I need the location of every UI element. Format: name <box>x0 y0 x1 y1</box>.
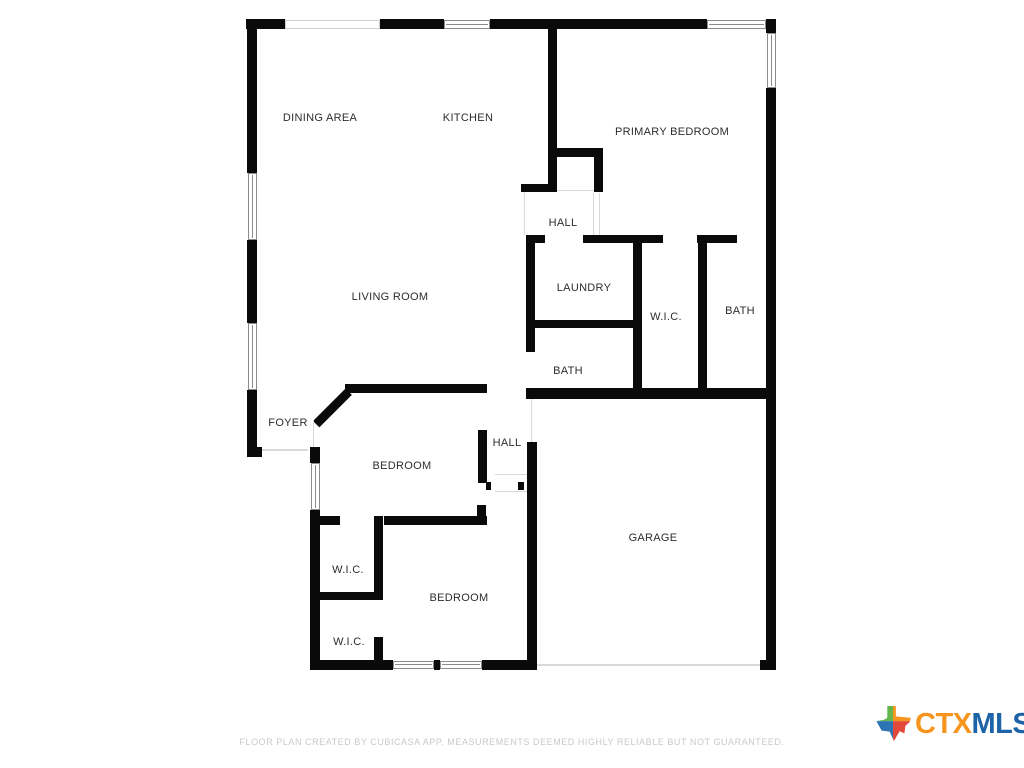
door-opening <box>599 193 600 235</box>
wall <box>374 516 383 600</box>
texas-red-quadrant <box>893 721 912 743</box>
window <box>285 20 380 29</box>
logo-ctx-text: CTX <box>915 710 972 739</box>
wall <box>247 447 262 457</box>
door-opening <box>593 193 594 235</box>
window <box>767 33 776 88</box>
door-opening <box>313 420 314 447</box>
wall <box>384 516 487 525</box>
floorplan: DINING AREAKITCHENPRIMARY BEDROOMHALLLIV… <box>0 0 1024 768</box>
window <box>444 20 490 29</box>
window <box>311 463 320 510</box>
door-opening <box>495 491 527 492</box>
window-center-line <box>395 664 432 665</box>
wall <box>760 660 776 670</box>
wall <box>247 390 257 447</box>
wall <box>527 442 537 670</box>
room-label-hall-lower: HALL <box>493 437 522 449</box>
wall <box>521 184 557 192</box>
wall <box>526 235 545 243</box>
wall <box>594 148 603 192</box>
window-center-line <box>252 175 253 238</box>
wall <box>310 447 320 463</box>
wall <box>548 29 557 192</box>
window <box>393 661 434 669</box>
wall <box>490 19 707 29</box>
room-label-wic-primary: W.I.C. <box>650 311 682 323</box>
room-label-hall-upper: HALL <box>549 217 578 229</box>
wall <box>247 19 257 173</box>
room-label-garage: GARAGE <box>629 532 678 544</box>
wall <box>482 660 537 670</box>
door-opening <box>531 399 532 442</box>
room-label-wic-1: W.I.C. <box>332 564 364 576</box>
wall <box>766 19 776 33</box>
window <box>707 20 766 29</box>
wall <box>478 430 487 483</box>
window <box>248 173 257 240</box>
wall <box>310 592 383 600</box>
wall <box>698 235 707 398</box>
window-center-line <box>771 35 772 86</box>
floorplan-image: DINING AREAKITCHENPRIMARY BEDROOMHALLLIV… <box>0 0 1024 768</box>
room-label-kitchen: KITCHEN <box>443 112 493 124</box>
door-opening <box>262 449 308 451</box>
window-center-line <box>446 24 488 25</box>
window-center-line <box>709 24 764 25</box>
wall <box>526 243 535 352</box>
wall <box>380 19 444 29</box>
wall <box>345 384 487 393</box>
room-label-primary-bedroom: PRIMARY BEDROOM <box>615 126 729 138</box>
wall <box>310 660 393 670</box>
door-opening <box>537 664 760 666</box>
room-label-living-room: LIVING ROOM <box>352 291 429 303</box>
texas-green-quadrant <box>874 705 893 721</box>
window <box>248 323 257 390</box>
wall <box>766 88 776 670</box>
room-label-bath-main: BATH <box>553 365 583 377</box>
door-opening <box>557 190 594 191</box>
room-label-bedroom-front: BEDROOM <box>373 460 432 472</box>
disclaimer-text: FLOOR PLAN CREATED BY CUBICASA APP. MEAS… <box>239 737 784 747</box>
texas-blue-quadrant <box>874 721 893 743</box>
door-opening <box>524 192 525 235</box>
room-label-foyer: FOYER <box>268 417 307 429</box>
room-label-bedroom-lower: BEDROOM <box>430 592 489 604</box>
wall <box>310 510 320 668</box>
room-label-bath-primary: BATH <box>725 305 755 317</box>
wall <box>247 240 257 323</box>
window-center-line <box>442 664 480 665</box>
wall <box>526 320 642 328</box>
wall <box>518 482 524 490</box>
wall <box>486 482 491 490</box>
wall-diagonal <box>313 388 352 427</box>
door-opening <box>495 474 527 475</box>
window <box>440 661 482 669</box>
logo-mls-text: MLS <box>972 710 1024 739</box>
window-center-line <box>315 465 316 508</box>
texas-orange-quadrant <box>893 705 912 721</box>
room-label-dining-area: DINING AREA <box>283 112 357 124</box>
texas-icon <box>874 704 912 744</box>
window-center-line <box>252 325 253 388</box>
wall <box>633 235 642 398</box>
room-label-wic-2: W.I.C. <box>333 636 365 648</box>
wall <box>526 388 776 399</box>
wall <box>583 235 663 243</box>
ctxmls-logo: CTXMLS <box>874 704 1024 744</box>
room-label-laundry: LAUNDRY <box>557 282 611 294</box>
